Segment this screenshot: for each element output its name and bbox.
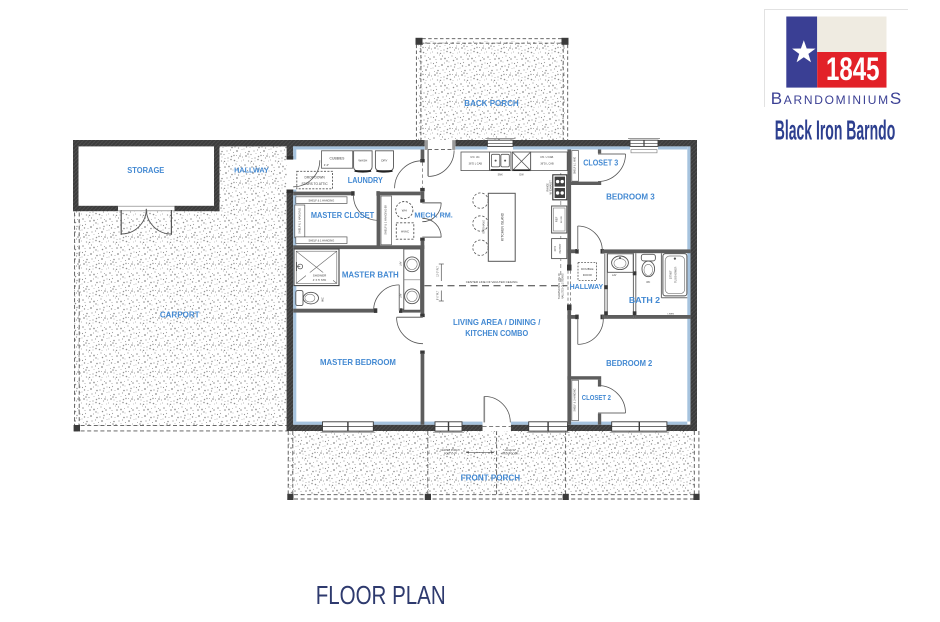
svg-text:SHELF & 1 HANGING: SHELF & 1 HANGING bbox=[308, 198, 334, 202]
svg-text:BATH 2: BATH 2 bbox=[629, 296, 661, 305]
svg-text:8'-0" PLT: 8'-0" PLT bbox=[437, 290, 439, 300]
svg-text:WH: WH bbox=[402, 208, 407, 212]
svg-text:DW: DW bbox=[519, 173, 524, 176]
svg-text:LAUNDRY: LAUNDRY bbox=[348, 176, 384, 185]
svg-text:4' X 5' STD: 4' X 5' STD bbox=[313, 278, 326, 282]
svg-text:CENTER LINE OF VAULTED CEILING: CENTER LINE OF VAULTED CEILING bbox=[466, 280, 519, 284]
svg-text:CLOSET 2: CLOSET 2 bbox=[582, 393, 611, 402]
svg-text:30"X60": 30"X60" bbox=[670, 270, 673, 279]
svg-text:MECH. RM.: MECH. RM. bbox=[414, 211, 452, 220]
svg-text:SHELF & 1 HANGING 68: SHELF & 1 HANGING 68 bbox=[384, 205, 388, 235]
svg-text:KITCHEN COMBO: KITCHEN COMBO bbox=[465, 328, 528, 338]
svg-text:BEDROOM 2: BEDROOM 2 bbox=[606, 359, 653, 368]
svg-text:CLOSET 3: CLOSET 3 bbox=[583, 158, 619, 167]
svg-text:FRONT PORCH: FRONT PORCH bbox=[461, 473, 521, 482]
svg-text:MASTER CLOSET: MASTER CLOSET bbox=[311, 211, 374, 220]
svg-text:HALLWAY: HALLWAY bbox=[570, 282, 604, 291]
svg-text:CARPORT: CARPORT bbox=[160, 310, 200, 319]
svg-text:36"D L CAB: 36"D L CAB bbox=[540, 163, 554, 166]
svg-text:STORAGE: STORAGE bbox=[127, 166, 164, 175]
svg-text:SHELF & 1 HANGING: SHELF & 1 HANGING bbox=[308, 238, 334, 242]
svg-text:PANTRY: PANTRY bbox=[559, 243, 562, 253]
svg-text:SHOWER: SHOWER bbox=[313, 274, 327, 278]
svg-text:REF: REF bbox=[555, 216, 559, 222]
svg-text:POST 6'-0": POST 6'-0" bbox=[444, 452, 456, 455]
svg-text:36"D L CAB: 36"D L CAB bbox=[469, 163, 483, 166]
svg-text:MASTER BEDROOM: MASTER BEDROOM bbox=[320, 357, 396, 367]
svg-text:CUBBIES: CUBBIES bbox=[330, 157, 346, 161]
svg-text:TERMINATION LINE OF: TERMINATION LINE OF bbox=[558, 272, 561, 299]
svg-text:SHELF & 1 HNG: SHELF & 1 HNG bbox=[574, 157, 576, 174]
svg-text:Black Iron Barndo: Black Iron Barndo bbox=[775, 114, 896, 145]
svg-text:U'D. U CAB.: U'D. U CAB. bbox=[540, 156, 554, 159]
svg-text:RANGE: RANGE bbox=[547, 183, 550, 192]
svg-text:DRY: DRY bbox=[381, 159, 387, 163]
svg-text:TUB/SHOWER: TUB/SHOWER bbox=[674, 266, 677, 282]
svg-text:U'D. UC.: U'D. UC. bbox=[470, 156, 480, 159]
svg-text:DOOR: DOOR bbox=[583, 273, 593, 277]
svg-text:BACK PORCH: BACK PORCH bbox=[464, 99, 519, 108]
svg-text:MASTER BATH: MASTER BATH bbox=[342, 270, 399, 280]
svg-text:KITCHEN ISLAND: KITCHEN ISLAND bbox=[501, 212, 505, 241]
svg-text:LINEN: LINEN bbox=[668, 314, 675, 316]
svg-text:LAV: LAV bbox=[400, 293, 403, 298]
svg-text:HVAC: HVAC bbox=[401, 229, 410, 233]
svg-text:4'-0": 4'-0" bbox=[324, 163, 329, 167]
svg-text:DOUBLE: DOUBLE bbox=[581, 267, 593, 271]
svg-text:FLOOR PLAN: FLOOR PLAN bbox=[316, 580, 446, 610]
svg-text:24"D: 24"D bbox=[554, 246, 557, 252]
svg-text:LAV: LAV bbox=[400, 261, 403, 266]
svg-text:SHELF & 1 HANGING: SHELF & 1 HANGING bbox=[573, 388, 576, 411]
svg-text:LIVING AREA / DINING /: LIVING AREA / DINING / bbox=[453, 317, 541, 327]
svg-text:OVERHANG: OVERHANG bbox=[483, 220, 486, 234]
svg-text:BEDROOM 3: BEDROOM 3 bbox=[606, 192, 655, 201]
svg-text:LAV: LAV bbox=[612, 274, 617, 277]
svg-text:FRONT DOOR: FRONT DOOR bbox=[502, 452, 518, 455]
svg-text:1845: 1845 bbox=[826, 51, 880, 87]
svg-text:12'-0" PLT: 12'-0" PLT bbox=[437, 266, 439, 277]
svg-text:WASH: WASH bbox=[358, 159, 367, 163]
svg-text:SHELF & 1 HANGING: SHELF & 1 HANGING bbox=[298, 208, 302, 234]
svg-text:WC: WC bbox=[646, 281, 650, 284]
svg-text:W/ ICE: W/ ICE bbox=[561, 216, 563, 223]
svg-text:SNK: SNK bbox=[498, 173, 503, 176]
svg-text:W/ EXHAUST: W/ EXHAUST bbox=[550, 180, 553, 195]
svg-text:HALLWAY: HALLWAY bbox=[234, 165, 269, 174]
svg-text:WC: WC bbox=[321, 297, 325, 302]
